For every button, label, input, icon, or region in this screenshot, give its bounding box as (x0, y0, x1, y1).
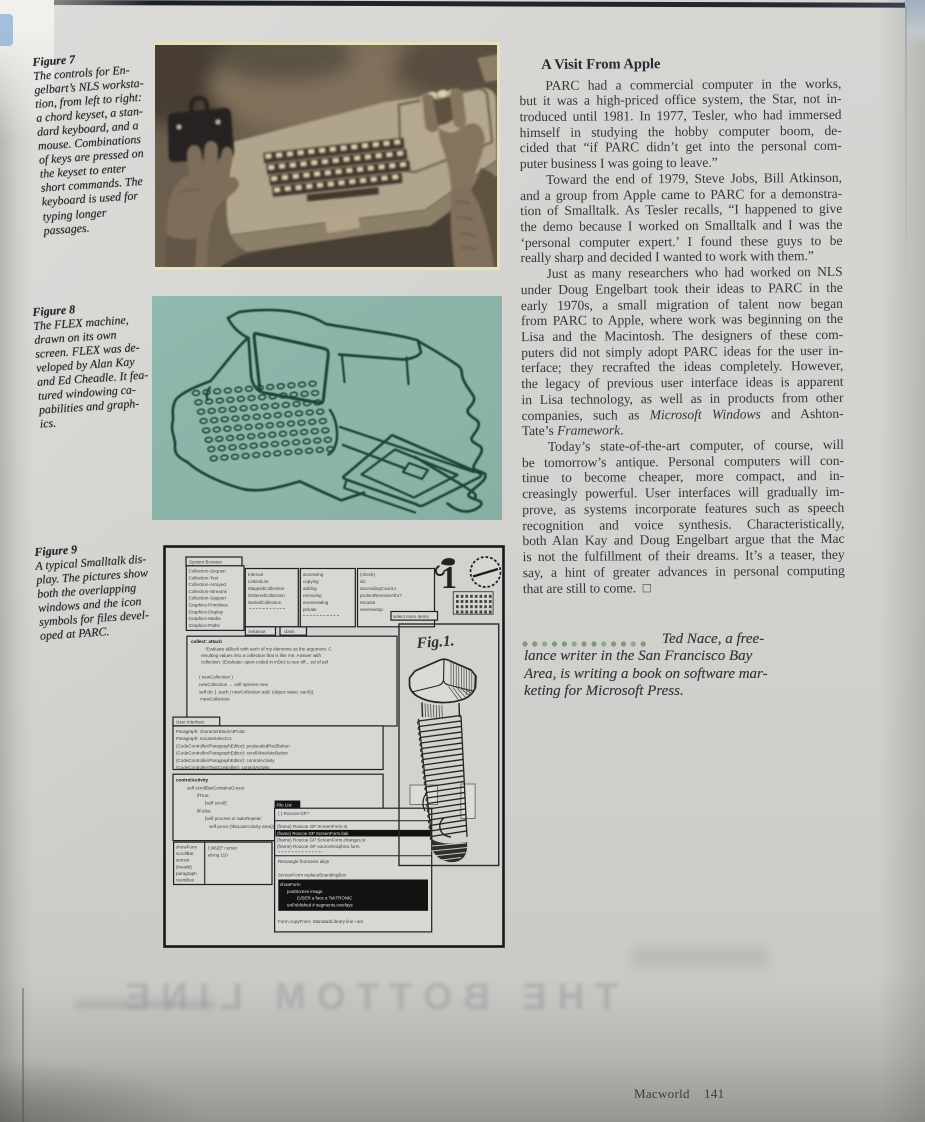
svg-text:( ) Roscoe GP.*: ( ) Roscoe GP.* (278, 811, 309, 816)
svg-text:(frame) Roscoe GP ScreenForm.: (frame) Roscoe GP ScreenForm.st (277, 824, 348, 829)
svg-text:(USER a face a TekTRONIC: (USER a face a TekTRONIC (297, 896, 352, 901)
svg-text:Collection-Text: Collection-Text (189, 575, 220, 580)
svg-text:class: class (284, 629, 295, 634)
svg-text:ifFalse:: ifFalse: (197, 808, 212, 813)
svg-text:sensor: sensor (176, 858, 190, 863)
svg-text:along 110: along 110 (208, 853, 228, 858)
svg-text:MappedCollection: MappedCollection (248, 586, 285, 591)
svg-text:Collection-Arrayed: Collection-Arrayed (189, 582, 227, 587)
svg-text:scrollBar: scrollBar (176, 851, 194, 856)
svg-text:controlActivity: controlActivity (176, 778, 209, 783)
svg-text:[self process or autoRepeat:: [self process or autoRepeat: (205, 816, 262, 821)
svg-text:(CodeController/TextController: (CodeController/TextController): control… (176, 765, 270, 770)
svg-text:(CodeController/ParagraphEdito: (CodeController/ParagraphEditor): postsc… (176, 743, 290, 748)
svg-text:reentBox: reentBox (176, 878, 195, 883)
svg-text:showForm: showForm (280, 882, 301, 887)
svg-text:(CodeController/ParagraphEdito: (CodeController/ParagraphEditor): contro… (176, 758, 275, 763)
svg-text:self do: [ :each | newCollecti: self do: [ :each | newCollection add: (o… (199, 690, 314, 695)
svg-text:reversedup: reversedup (360, 607, 383, 612)
svg-text:do:: do: (360, 579, 366, 584)
svg-text:select more items: select more items (393, 614, 429, 619)
svg-text:(frame) Roscoe GP sourceGraph: (frame) Roscoe GP sourceGraphics.form (277, 844, 360, 849)
svg-text:Graphics-Display: Graphics-Display (189, 609, 224, 614)
svg-text:(frame) Roscoe GP ScreenForm.: (frame) Roscoe GP ScreenForm.changes.st (277, 838, 366, 843)
svg-text:Graphics-Primitives: Graphics-Primitives (189, 603, 229, 608)
svg-text:newCollection ← self species n: newCollection ← self species new. (199, 682, 269, 687)
svg-text:(check): (check) (360, 572, 375, 577)
svg-text:unPublished # segments.overl: unPublished # segments.overlays (287, 902, 353, 907)
svg-text:User Interface: User Interface (176, 720, 205, 725)
svg-text:collection. (Evaluate: open-co: collection. (Evaluate: open-coded in inD… (201, 659, 329, 664)
svg-text:removing: removing (303, 593, 322, 598)
svg-text:( newCollection ): ( newCollection ) (199, 675, 233, 680)
svg-text:resulting values into a collec: resulting values into a collection that … (201, 653, 322, 658)
svg-text:self scrollBarContainsCursor: self scrollBarContainsCursor (187, 785, 245, 790)
svg-text:ScreenForm replaceBoundingBox: ScreenForm replaceBoundingBox (278, 873, 347, 878)
svg-text:self proce (theLastActivity a: self proce (theLastActivity area)] (209, 824, 274, 829)
svg-text:(invalid): (invalid) (176, 864, 192, 869)
svg-text:[self scroll]: [self scroll] (205, 801, 226, 806)
svg-text:Rectangle fromUser align: Rectangle fromUser align (278, 859, 330, 864)
svg-text:File List: File List (277, 803, 293, 808)
svg-text:recanta: recanta (360, 600, 376, 605)
svg-text:Paragraph: mouseSelect:to:: Paragraph: mouseSelect:to: (176, 736, 232, 741)
svg-text:“Evaluate aBlock with each of: “Evaluate aBlock with each of my element… (205, 646, 332, 651)
svg-text:Paragraph: characterBlockAtPoi: Paragraph: characterBlockAtPoint: (176, 729, 246, 734)
svg-text:Graphics-Paths: Graphics-Paths (189, 623, 221, 628)
svg-text:Collection-Streams: Collection-Streams (189, 589, 228, 594)
svg-text:adding: adding (303, 586, 317, 591)
svg-text:accessing: accessing (303, 572, 324, 577)
svg-text:Fig.1.: Fig.1. (415, 632, 455, 652)
svg-text:Collection-Sequen: Collection-Sequen (189, 569, 227, 574)
svg-text:LinkedList: LinkedList (248, 579, 269, 584)
svg-text:ifTrue:: ifTrue: (197, 793, 210, 798)
svg-text:ascendingCount:x: ascendingCount:x (360, 586, 397, 591)
svg-text:SortedCollection: SortedCollection (248, 600, 282, 605)
svg-text:(CodeController/ParagraphEdito: (CodeController/ParagraphEditor): scroll… (176, 751, 288, 756)
svg-text:copying: copying (303, 579, 319, 584)
svg-text:showForm: showForm (176, 845, 197, 850)
svg-text:paragraph: paragraph (176, 871, 197, 876)
svg-text:enumerating: enumerating (303, 600, 329, 605)
svg-text:collect: attach: collect: attach (191, 639, 222, 644)
svg-text:private: private (303, 607, 317, 612)
svg-text:Interval: Interval (248, 572, 263, 577)
svg-text:OrderedCollection: OrderedCollection (248, 593, 285, 598)
svg-text:Graphics-Media: Graphics-Media (189, 616, 222, 621)
svg-text:postScreen image: postScreen image (287, 889, 323, 894)
svg-text:(frame) Roscoe GP ScreenForm.: (frame) Roscoe GP ScreenForm.bak (277, 831, 349, 836)
svg-text:Form copyFrom: StandardLibrary: Form copyFrom: StandardLibrary line i se… (278, 919, 364, 924)
svg-text:| [462]? cursor: | [462]? cursor (208, 846, 237, 851)
svg-text:Collection-Support: Collection-Support (189, 596, 227, 601)
svg-text:instance: instance (249, 629, 266, 634)
svg-text:System Browser: System Browser (189, 560, 223, 565)
svg-text:↑newCollection: ↑newCollection (199, 697, 230, 702)
svg-text:protectRemoveAll:x?: protectRemoveAll:x? (360, 593, 402, 598)
